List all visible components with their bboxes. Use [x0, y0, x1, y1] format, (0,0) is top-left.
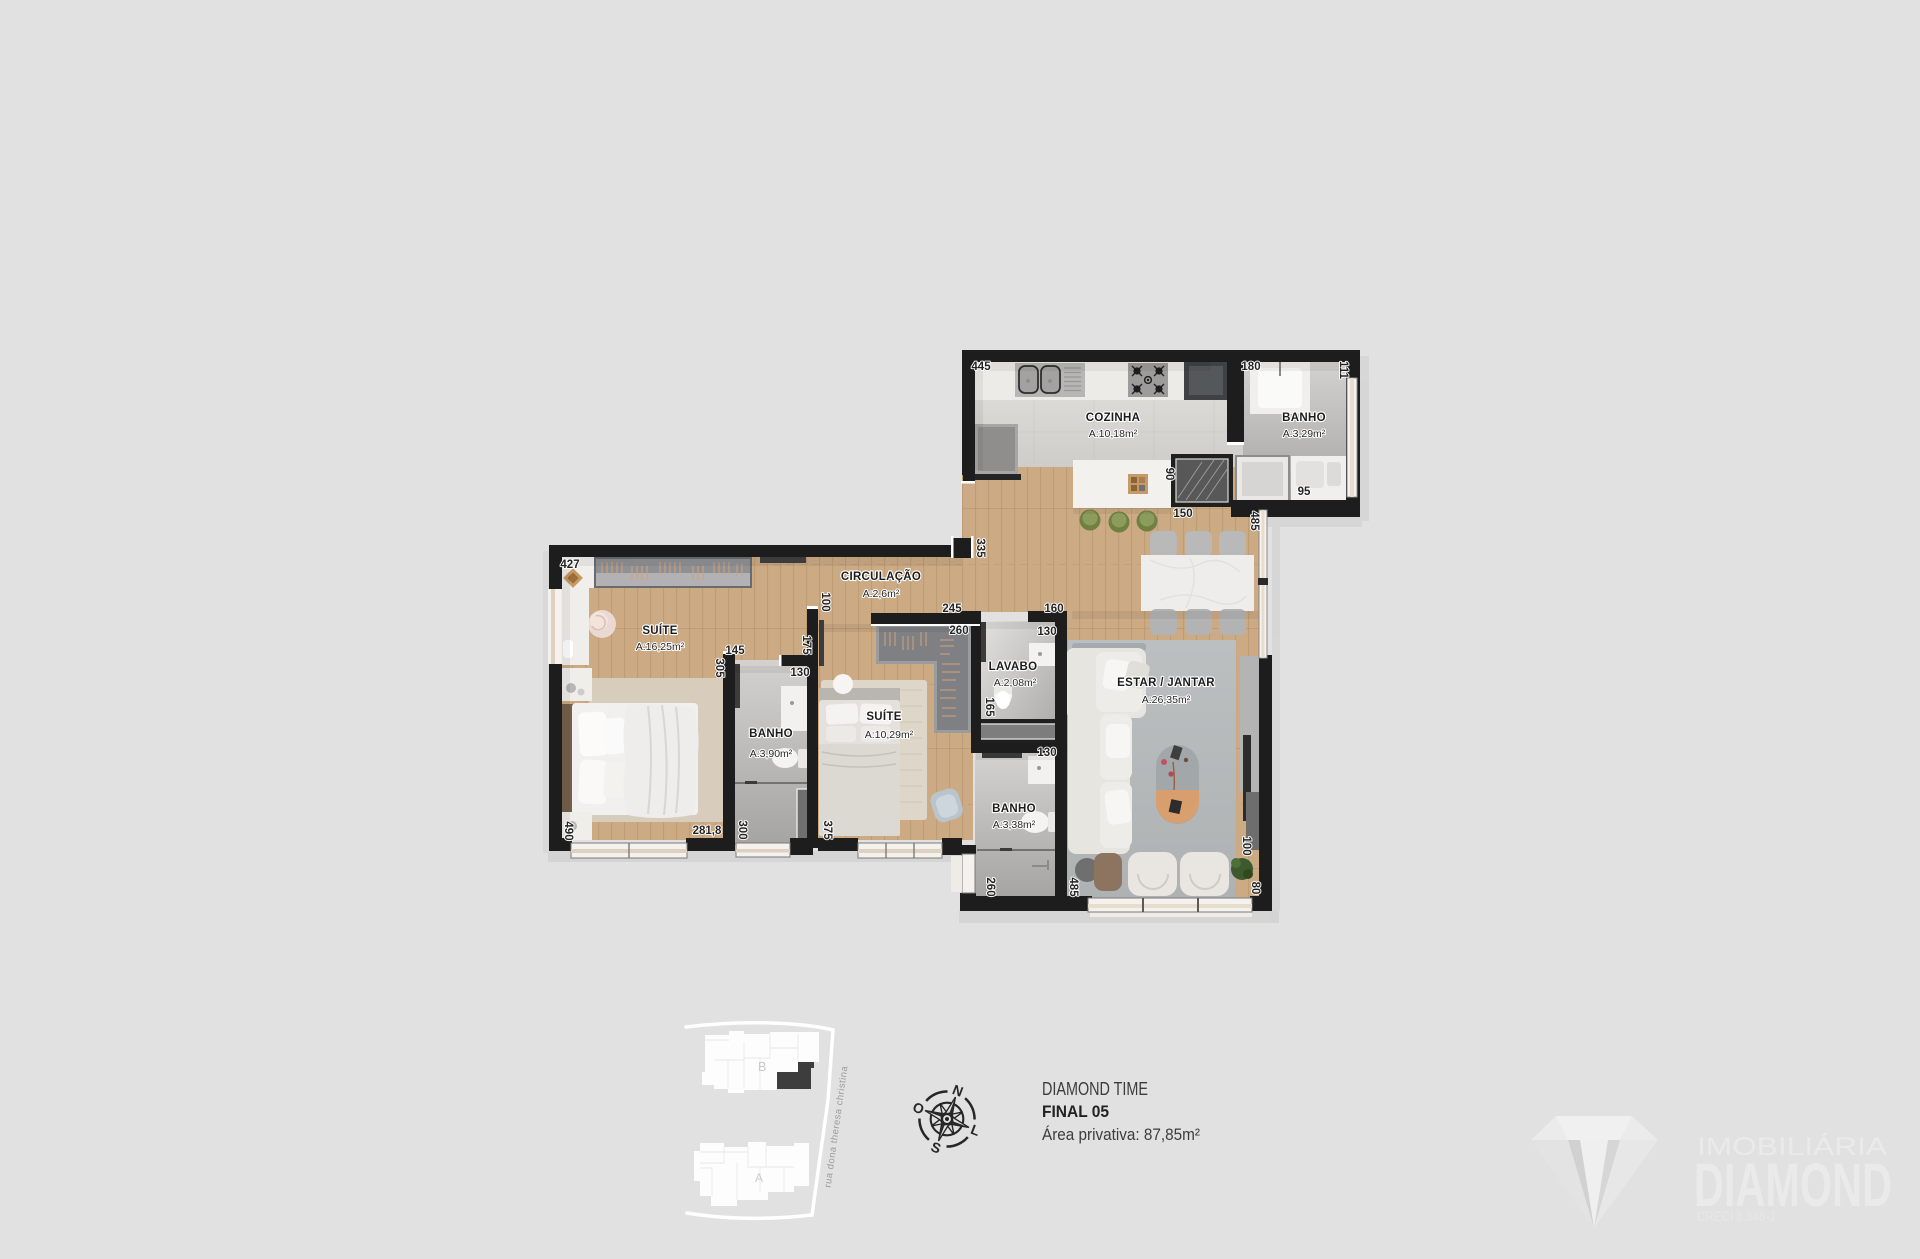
svg-text:BANHO: BANHO [992, 803, 1036, 815]
svg-text:90: 90 [1163, 468, 1175, 481]
svg-text:A:3,38m²: A:3,38m² [993, 819, 1036, 831]
svg-text:ESTAR / JANTAR: ESTAR / JANTAR [1117, 677, 1215, 689]
svg-text:Área privativa: 87,85m²: Área privativa: 87,85m² [1042, 1125, 1200, 1144]
svg-text:100: 100 [819, 592, 831, 611]
svg-text:165: 165 [983, 697, 995, 717]
svg-text:485: 485 [1067, 877, 1079, 897]
svg-text:260: 260 [949, 625, 968, 637]
svg-text:A:26,35m²: A:26,35m² [1142, 694, 1191, 706]
svg-text:130: 130 [1037, 626, 1056, 638]
svg-text:490: 490 [562, 821, 574, 840]
svg-text:335: 335 [974, 538, 986, 558]
svg-text:305: 305 [713, 658, 725, 678]
svg-text:BANHO: BANHO [749, 728, 793, 740]
svg-text:80: 80 [1249, 882, 1261, 895]
svg-text:175: 175 [800, 635, 812, 655]
svg-text:485: 485 [1248, 511, 1260, 531]
svg-text:111: 111 [1337, 361, 1349, 380]
svg-text:CRECI 8.846-J: CRECI 8.846-J [1697, 1208, 1775, 1224]
svg-text:130: 130 [790, 667, 809, 679]
svg-text:CIRCULAÇÃO: CIRCULAÇÃO [841, 570, 921, 583]
svg-text:A:3,29m²: A:3,29m² [1283, 428, 1326, 440]
svg-text:160: 160 [1044, 603, 1063, 615]
svg-text:95: 95 [1298, 486, 1311, 498]
svg-text:COZINHA: COZINHA [1086, 412, 1141, 424]
svg-text:427: 427 [560, 559, 579, 571]
svg-text:A:10,18m²: A:10,18m² [1089, 428, 1138, 440]
svg-text:281,8: 281,8 [693, 825, 722, 837]
svg-text:SUÍTE: SUÍTE [642, 624, 677, 637]
svg-text:300: 300 [736, 820, 748, 839]
svg-text:A:10,29m²: A:10,29m² [865, 729, 914, 741]
svg-text:DIAMOND TIME: DIAMOND TIME [1042, 1079, 1148, 1099]
svg-text:130: 130 [1037, 747, 1056, 759]
svg-text:245: 245 [942, 603, 962, 615]
svg-text:145: 145 [725, 645, 745, 657]
svg-text:A:2,6m²: A:2,6m² [863, 588, 900, 600]
svg-text:260: 260 [984, 877, 996, 896]
svg-text:A:3,90m²: A:3,90m² [750, 748, 793, 760]
svg-text:FINAL 05: FINAL 05 [1042, 1102, 1109, 1121]
svg-text:LAVABO: LAVABO [989, 661, 1038, 673]
svg-text:BANHO: BANHO [1282, 412, 1326, 424]
svg-text:375: 375 [821, 820, 833, 840]
svg-text:180: 180 [1241, 361, 1260, 373]
svg-text:B: B [758, 1060, 766, 1074]
svg-text:100: 100 [1240, 836, 1252, 855]
svg-text:445: 445 [971, 361, 991, 373]
svg-text:SUÍTE: SUÍTE [866, 710, 901, 723]
svg-text:150: 150 [1173, 508, 1192, 520]
svg-text:A:2,08m²: A:2,08m² [994, 677, 1037, 689]
svg-text:A: A [755, 1171, 763, 1185]
svg-text:A:16,25m²: A:16,25m² [636, 641, 685, 653]
